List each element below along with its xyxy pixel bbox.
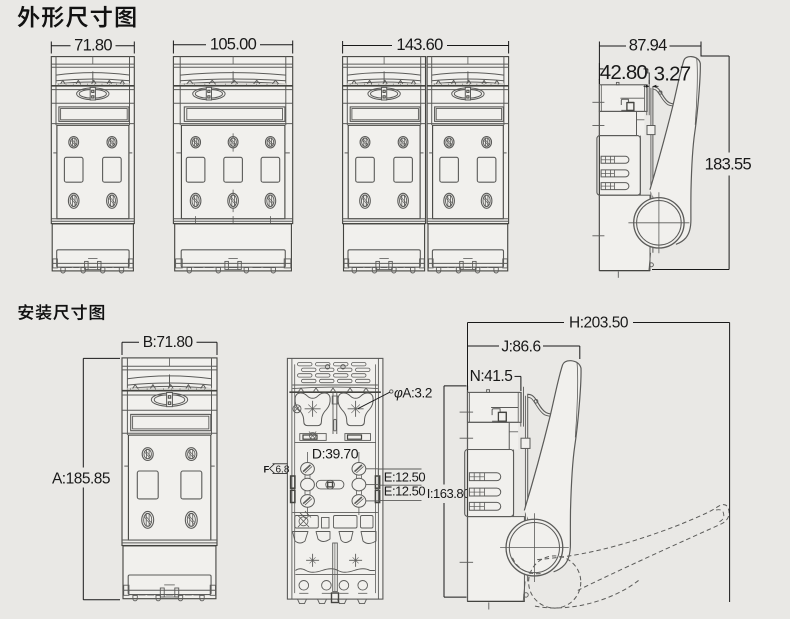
svg-text:E:12.50: E:12.50 <box>384 470 426 485</box>
svg-text:I:163.80: I:163.80 <box>427 486 470 501</box>
svg-text:71.80: 71.80 <box>74 36 112 54</box>
svg-text:A:185.85: A:185.85 <box>52 471 110 488</box>
svg-text:E:12.50: E:12.50 <box>384 484 426 499</box>
svg-text:87.94: 87.94 <box>629 37 667 55</box>
svg-text:183.55: 183.55 <box>705 155 752 173</box>
svg-text:J:86.6: J:86.6 <box>501 338 540 355</box>
svg-text:F: F <box>264 465 270 476</box>
svg-text:N:41.5: N:41.5 <box>470 368 513 385</box>
svg-text:143.60: 143.60 <box>396 36 443 54</box>
svg-text:42.80: 42.80 <box>600 61 648 84</box>
svg-text:φA:3.2: φA:3.2 <box>394 385 432 400</box>
svg-text:H:203.50: H:203.50 <box>569 315 629 332</box>
svg-text:D:39.70: D:39.70 <box>312 445 359 461</box>
svg-text:3.27: 3.27 <box>654 62 691 85</box>
svg-text:105.00: 105.00 <box>210 35 257 53</box>
svg-text:B:71.80: B:71.80 <box>143 334 194 351</box>
